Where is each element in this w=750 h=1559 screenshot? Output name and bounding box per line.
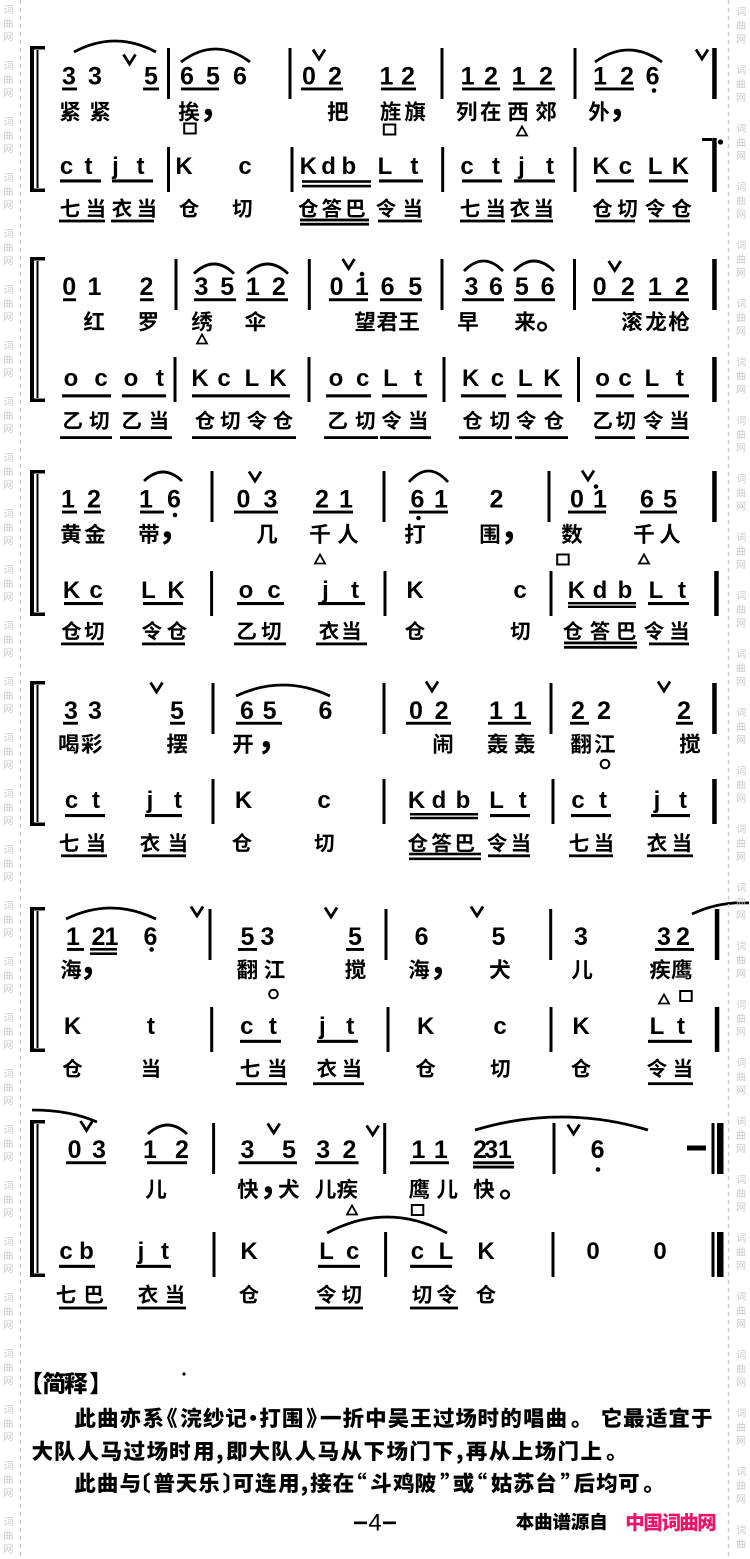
svg-text:2: 2	[484, 63, 498, 91]
svg-text:2: 2	[343, 1136, 357, 1164]
svg-text:t: t	[174, 787, 182, 814]
svg-text:K: K	[477, 1238, 495, 1265]
svg-text:5: 5	[282, 1136, 296, 1164]
svg-text:3: 3	[194, 273, 208, 301]
svg-text:6: 6	[240, 697, 254, 725]
svg-text:1: 1	[105, 923, 119, 951]
svg-text:5: 5	[491, 923, 505, 951]
svg-text:6: 6	[415, 923, 429, 951]
svg-text:o: o	[124, 365, 139, 392]
svg-text:L: L	[439, 1238, 454, 1265]
svg-text:2: 2	[140, 273, 154, 301]
svg-text:3: 3	[484, 1136, 498, 1164]
svg-text:c: c	[65, 787, 78, 814]
svg-text:t: t	[546, 153, 554, 180]
svg-text:c: c	[60, 153, 73, 180]
svg-text:0: 0	[409, 697, 423, 725]
svg-text:t: t	[410, 153, 418, 180]
svg-text:K: K	[240, 1238, 258, 1265]
svg-text:j: j	[111, 153, 119, 180]
svg-text:j: j	[146, 787, 154, 814]
svg-text:5: 5	[515, 273, 529, 301]
svg-text:6: 6	[381, 273, 395, 301]
svg-text:L: L	[649, 577, 664, 604]
svg-text:b: b	[618, 577, 633, 604]
svg-text:0: 0	[593, 273, 607, 301]
svg-text:c: c	[217, 365, 230, 392]
svg-text:K: K	[175, 153, 193, 180]
svg-text:1: 1	[355, 273, 369, 301]
svg-text:5: 5	[241, 923, 255, 951]
svg-text:t: t	[346, 1013, 354, 1040]
svg-text:6: 6	[144, 923, 158, 951]
svg-text:K: K	[191, 365, 209, 392]
svg-text:1: 1	[512, 63, 526, 91]
svg-text:c: c	[238, 153, 251, 180]
svg-text:K: K	[235, 787, 253, 814]
svg-text:K: K	[592, 153, 610, 180]
svg-text:t: t	[85, 153, 93, 180]
svg-text:3: 3	[261, 923, 275, 951]
svg-text:b: b	[341, 153, 356, 180]
svg-text:5: 5	[170, 697, 184, 725]
svg-text:d: d	[593, 577, 608, 604]
svg-text:0: 0	[62, 273, 76, 301]
svg-text:L: L	[489, 787, 504, 814]
svg-text:3: 3	[241, 1136, 255, 1164]
svg-text:c: c	[346, 1238, 359, 1265]
svg-text:5: 5	[220, 273, 234, 301]
svg-text:5: 5	[348, 923, 362, 951]
svg-text:t: t	[679, 787, 687, 814]
svg-text:0: 0	[68, 1136, 82, 1164]
svg-text:5: 5	[263, 697, 277, 725]
svg-text:2: 2	[620, 63, 634, 91]
svg-text:c: c	[59, 1238, 72, 1265]
svg-text:t: t	[92, 787, 100, 814]
svg-text:K: K	[64, 1013, 82, 1040]
svg-text:K: K	[269, 365, 287, 392]
svg-text:2: 2	[675, 273, 689, 301]
svg-text:1: 1	[593, 63, 607, 91]
svg-text:t: t	[156, 365, 164, 392]
svg-text:c: c	[317, 787, 330, 814]
svg-text:1: 1	[461, 63, 475, 91]
svg-text:j: j	[318, 1013, 326, 1040]
svg-text:c: c	[460, 153, 473, 180]
svg-text:L: L	[518, 365, 533, 392]
svg-text:1: 1	[246, 273, 260, 301]
svg-text:1: 1	[498, 1136, 512, 1164]
svg-text:t: t	[147, 1013, 155, 1040]
svg-text:2: 2	[87, 486, 101, 514]
svg-text:c: c	[618, 365, 631, 392]
svg-text:t: t	[677, 1013, 685, 1040]
svg-text:1: 1	[513, 697, 527, 725]
svg-text:5: 5	[144, 63, 158, 91]
svg-text:4: 4	[368, 1510, 381, 1537]
svg-text:5: 5	[408, 273, 422, 301]
svg-text:2: 2	[676, 923, 690, 951]
svg-text:2: 2	[435, 697, 449, 725]
svg-text:2: 2	[401, 63, 415, 91]
svg-text:o: o	[239, 577, 254, 604]
svg-text:6: 6	[591, 1136, 605, 1164]
svg-text:2: 2	[92, 923, 106, 951]
svg-text:1: 1	[648, 273, 662, 301]
svg-text:1: 1	[411, 1136, 425, 1164]
svg-text:1: 1	[66, 923, 80, 951]
svg-text:1: 1	[143, 1136, 157, 1164]
svg-text:6: 6	[489, 273, 503, 301]
svg-text:3: 3	[88, 697, 102, 725]
svg-text:L: L	[141, 577, 156, 604]
svg-text:2: 2	[621, 273, 635, 301]
svg-text:L: L	[245, 365, 260, 392]
svg-text:L: L	[650, 1013, 665, 1040]
svg-text:K: K	[417, 1013, 435, 1040]
svg-text:3: 3	[64, 697, 78, 725]
svg-text:3: 3	[657, 923, 671, 951]
svg-text:3: 3	[88, 63, 102, 91]
svg-text:1: 1	[339, 486, 353, 514]
svg-text:1: 1	[139, 486, 153, 514]
svg-text:o: o	[329, 365, 344, 392]
svg-text:5: 5	[663, 486, 677, 514]
svg-text:2: 2	[571, 697, 585, 725]
svg-text:t: t	[269, 1013, 277, 1040]
svg-text:5: 5	[206, 63, 220, 91]
svg-text:L: L	[648, 153, 663, 180]
svg-text:1: 1	[489, 697, 503, 725]
svg-text:c: c	[356, 365, 369, 392]
svg-text:K: K	[63, 577, 81, 604]
svg-text:1: 1	[434, 1136, 448, 1164]
svg-text:2: 2	[539, 63, 553, 91]
svg-text:K: K	[408, 787, 426, 814]
svg-text:t: t	[161, 1238, 169, 1265]
svg-text:K: K	[672, 153, 690, 180]
svg-text:3: 3	[264, 486, 278, 514]
svg-text:6: 6	[541, 273, 555, 301]
svg-text:6: 6	[411, 486, 425, 514]
svg-text:0: 0	[586, 1238, 599, 1265]
svg-text:t: t	[492, 153, 500, 180]
svg-text:K: K	[568, 577, 586, 604]
svg-text:1: 1	[593, 486, 607, 514]
svg-text:c: c	[571, 787, 584, 814]
svg-text:2: 2	[677, 697, 691, 725]
svg-text:o: o	[64, 365, 79, 392]
svg-text:d: d	[321, 153, 336, 180]
svg-text:b: b	[79, 1238, 94, 1265]
svg-text:2: 2	[328, 63, 342, 91]
svg-text:2: 2	[490, 486, 504, 514]
svg-text:c: c	[89, 577, 102, 604]
svg-text:2: 2	[597, 697, 611, 725]
svg-text:c: c	[619, 153, 632, 180]
svg-text:j: j	[321, 577, 329, 604]
svg-text:2: 2	[175, 1136, 189, 1164]
svg-text:1: 1	[61, 486, 75, 514]
svg-text:c: c	[493, 1013, 506, 1040]
svg-text:t: t	[414, 365, 422, 392]
svg-text:3: 3	[62, 63, 76, 91]
svg-text:6: 6	[167, 486, 181, 514]
svg-text:6: 6	[233, 63, 247, 91]
svg-text:0: 0	[653, 1238, 666, 1265]
svg-text:1: 1	[380, 63, 394, 91]
svg-text:j: j	[653, 787, 661, 814]
svg-text:c: c	[240, 1013, 253, 1040]
svg-text:1: 1	[434, 486, 448, 514]
svg-text:3: 3	[92, 1136, 106, 1164]
svg-text:j: j	[517, 153, 525, 180]
svg-text:K: K	[572, 1013, 590, 1040]
svg-text:c: c	[513, 577, 526, 604]
svg-text:L: L	[383, 365, 398, 392]
svg-text:K: K	[300, 153, 318, 180]
svg-text:6: 6	[319, 697, 333, 725]
svg-text:0: 0	[330, 273, 344, 301]
svg-text:K: K	[462, 365, 480, 392]
svg-text:d: d	[432, 787, 447, 814]
svg-text:t: t	[599, 787, 607, 814]
svg-text:3: 3	[316, 1136, 330, 1164]
svg-text:K: K	[167, 577, 185, 604]
svg-text:3: 3	[464, 273, 478, 301]
svg-text:c: c	[94, 365, 107, 392]
svg-text:t: t	[676, 365, 684, 392]
svg-text:t: t	[678, 577, 686, 604]
svg-text:0: 0	[302, 63, 316, 91]
svg-text:c: c	[491, 365, 504, 392]
svg-text:3: 3	[574, 923, 588, 951]
svg-text:0: 0	[570, 486, 584, 514]
svg-text:6: 6	[646, 63, 660, 91]
svg-text:o: o	[595, 365, 610, 392]
svg-text:1: 1	[87, 273, 101, 301]
svg-text:t: t	[137, 153, 145, 180]
svg-text:t: t	[351, 577, 359, 604]
svg-text:t: t	[519, 787, 527, 814]
svg-text:c: c	[267, 577, 280, 604]
svg-text:K: K	[406, 577, 424, 604]
svg-text:b: b	[456, 787, 471, 814]
svg-text:6: 6	[180, 63, 194, 91]
svg-text:0: 0	[237, 486, 251, 514]
svg-text:K: K	[543, 365, 561, 392]
svg-text:L: L	[378, 153, 393, 180]
svg-text:6: 6	[640, 486, 654, 514]
svg-text:L: L	[645, 365, 660, 392]
svg-text:2: 2	[315, 486, 329, 514]
svg-text:c: c	[411, 1238, 424, 1265]
svg-text:2: 2	[272, 273, 286, 301]
svg-text:L: L	[319, 1238, 334, 1265]
svg-text:j: j	[137, 1238, 145, 1265]
